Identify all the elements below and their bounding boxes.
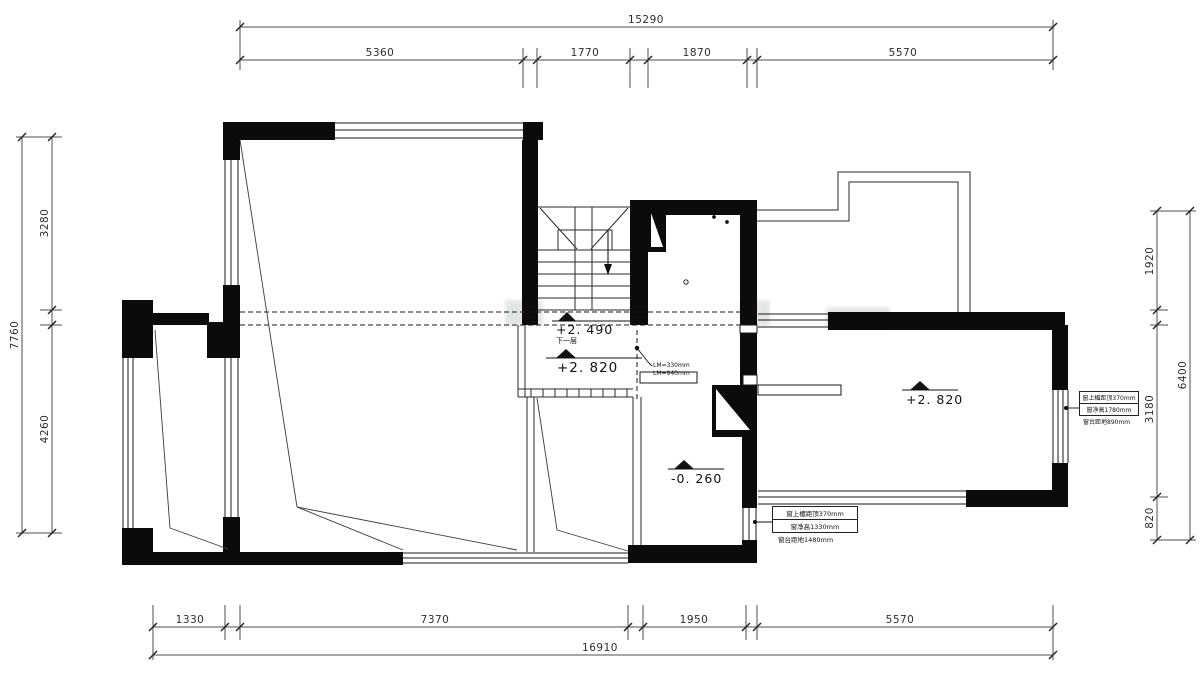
- window-note-right-row1: 窗上楣距顶370mm: [1080, 392, 1138, 404]
- window-note-bottom: 窗上楣距顶370mm 窗净高1330mm: [772, 506, 858, 533]
- dim-right-overall: 6400: [1177, 361, 1189, 390]
- dim-top-overall: 15290: [628, 14, 664, 26]
- elevation-label-stair: +2. 490: [556, 322, 613, 337]
- stair-lm-note-line1: LM=330mm: [653, 362, 690, 370]
- dim-top-seg: 1770: [571, 47, 600, 59]
- dim-bottom-seg: 1330: [176, 614, 205, 626]
- dim-right-seg: 3180: [1144, 395, 1156, 424]
- windows: [123, 123, 1068, 563]
- dim-top-seg: 1870: [683, 47, 712, 59]
- elevation-label-middle-room: -0. 260: [671, 471, 722, 486]
- elevation-label-right-room: +2. 820: [906, 392, 963, 407]
- window-note-bottom-row3: 窗台距地1480mm: [778, 534, 833, 544]
- dim-top-seg: 5360: [366, 47, 395, 59]
- dim-right-seg: 1920: [1144, 247, 1156, 276]
- dim-bottom-seg: 1950: [680, 614, 709, 626]
- elevation-label-landing: +2. 820: [557, 360, 618, 376]
- dashed-lines: [240, 312, 740, 400]
- staircase: [538, 207, 630, 310]
- dim-right-seg: 820: [1144, 507, 1156, 529]
- window-note-bottom-row1: 窗上楣距顶370mm: [773, 507, 857, 520]
- window-note-right-row2: 窗净高1780mm: [1080, 404, 1138, 415]
- dim-bottom-overall: 16910: [582, 642, 618, 654]
- dim-top-seg: 5570: [889, 47, 918, 59]
- window-note-bottom-row2: 窗净高1330mm: [773, 520, 857, 532]
- window-note-right-row3: 窗台距地890mm: [1083, 417, 1130, 426]
- window-note-right: 窗上楣距顶370mm 窗净高1780mm: [1079, 391, 1139, 416]
- floor-plan-canvas: 15290 5360 1770 1870 5570 1330 7370 1950…: [0, 0, 1200, 673]
- walls: [122, 122, 1068, 565]
- dim-bottom-seg: 7370: [421, 614, 450, 626]
- dim-bottom-seg: 5570: [886, 614, 915, 626]
- terrace-outline: [757, 172, 970, 312]
- dim-left-seg: 4260: [39, 415, 51, 444]
- stair-lm-note-line2: LM=940mm: [653, 370, 690, 378]
- elevation-sublabel-stair: 下一层: [556, 336, 577, 346]
- dim-left-seg: 3280: [39, 209, 51, 238]
- dim-left-overall: 7760: [9, 321, 21, 350]
